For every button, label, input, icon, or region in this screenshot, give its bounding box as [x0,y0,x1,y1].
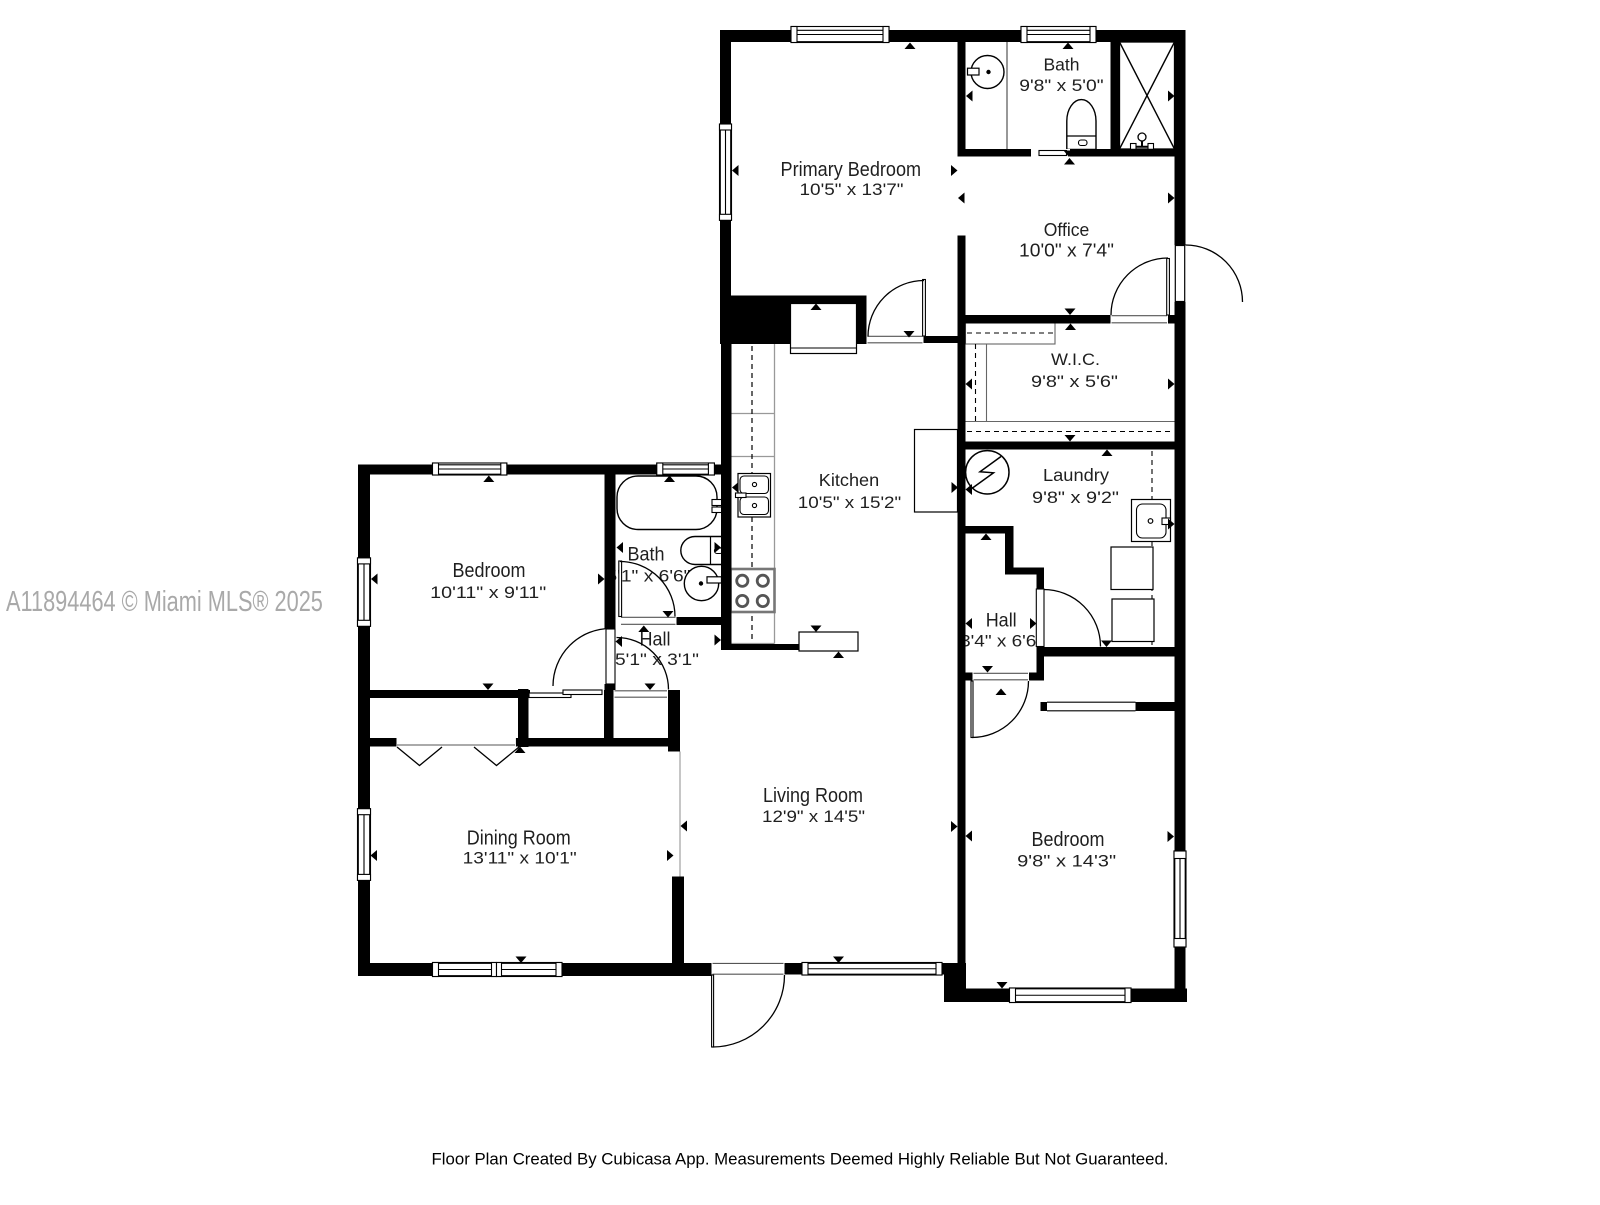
svg-text:9'8" x 14'3": 9'8" x 14'3" [1017,852,1116,871]
svg-text:Kitchen: Kitchen [819,470,879,490]
svg-text:9'8" x 5'6": 9'8" x 5'6" [1031,373,1118,391]
svg-text:10'0" x 7'4": 10'0" x 7'4" [1019,240,1114,260]
svg-text:Bath: Bath [1044,54,1080,74]
svg-text:12'9" x 14'5": 12'9" x 14'5" [762,807,865,826]
svg-text:Hall: Hall [640,630,671,651]
svg-text:10'5" x 15'2": 10'5" x 15'2" [798,493,902,512]
svg-text:Bedroom: Bedroom [1032,828,1105,851]
svg-text:Bath: Bath [628,544,665,565]
svg-text:W.I.C.: W.I.C. [1051,350,1100,369]
svg-text:A11894464 © Miami MLS® 2025: A11894464 © Miami MLS® 2025 [6,586,323,618]
svg-text:Laundry: Laundry [1043,465,1109,485]
svg-text:Hall: Hall [986,611,1017,632]
svg-text:Living Room: Living Room [763,784,863,807]
svg-text:10'11" x 9'11": 10'11" x 9'11" [430,583,546,602]
svg-text:10'5" x 13'7": 10'5" x 13'7" [800,180,904,199]
svg-text:Dining Room: Dining Room [467,827,571,850]
svg-text:3'4" x 6'6": 3'4" x 6'6" [960,633,1043,651]
svg-text:Bedroom: Bedroom [453,559,526,582]
svg-text:Floor Plan Created By Cubicasa: Floor Plan Created By Cubicasa App. Meas… [432,1150,1169,1169]
svg-text:9'8" x 9'2": 9'8" x 9'2" [1032,488,1119,507]
svg-text:5'1" x 3'1": 5'1" x 3'1" [615,651,699,669]
svg-text:9'8" x 5'0": 9'8" x 5'0" [1019,77,1103,95]
svg-text:Primary Bedroom: Primary Bedroom [781,158,922,181]
svg-text:13'11" x 10'1": 13'11" x 10'1" [463,849,577,868]
svg-text:Office: Office [1044,219,1090,240]
